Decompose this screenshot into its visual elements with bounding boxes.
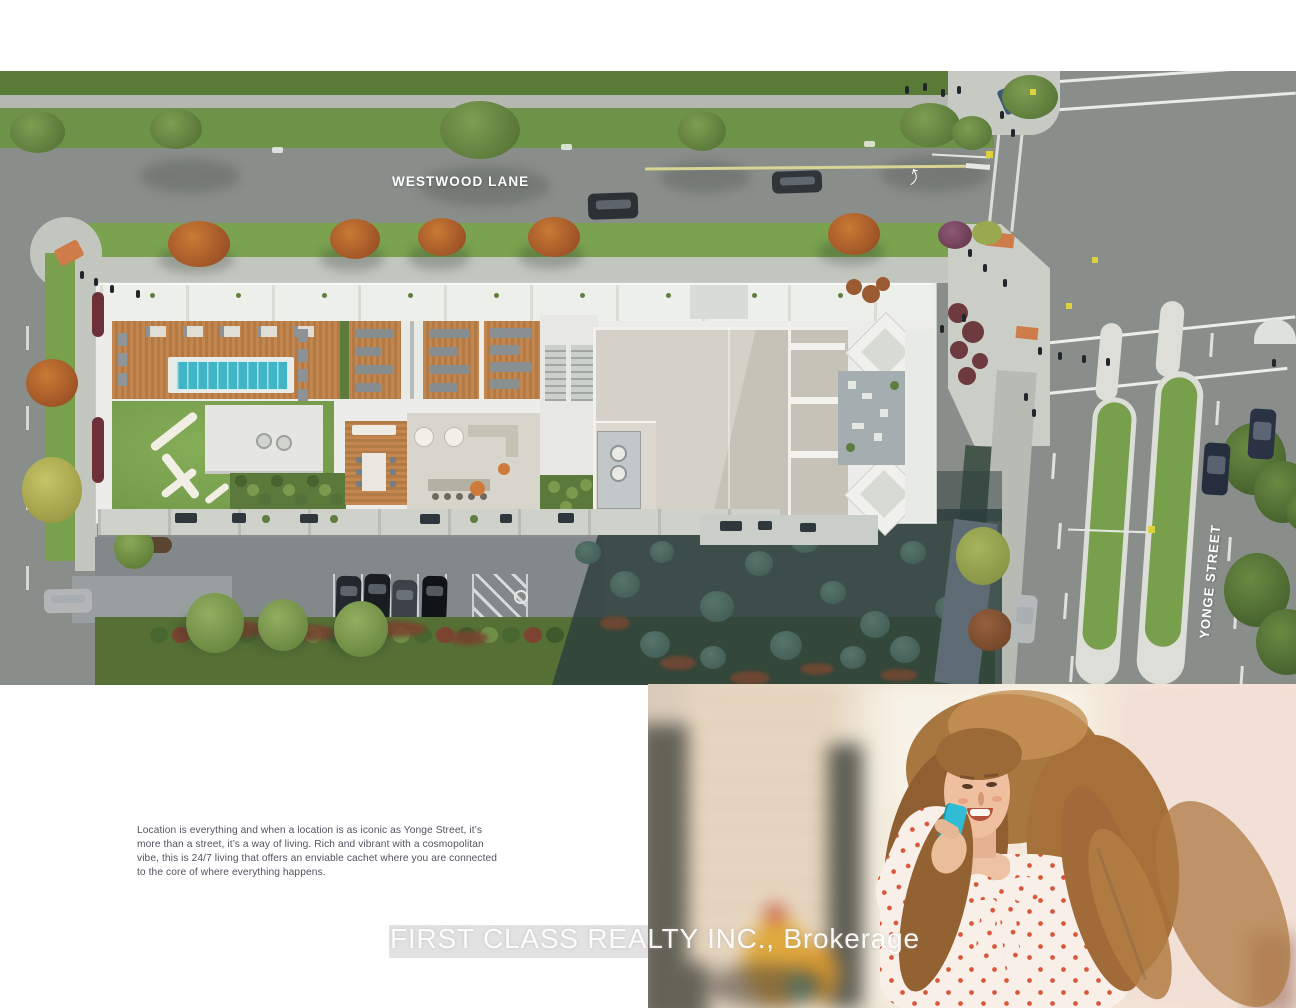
shrub — [283, 484, 295, 496]
shaded-bush — [860, 611, 890, 638]
autumn-tree — [528, 217, 580, 257]
car-yonge — [1201, 442, 1231, 496]
balcony-plant — [666, 293, 671, 298]
bar-stool — [444, 493, 451, 500]
terrace-unit — [800, 523, 816, 532]
blush — [992, 796, 1002, 802]
pedestrian — [968, 249, 972, 257]
deck-hedge — [340, 321, 349, 399]
car-glass — [1253, 421, 1272, 440]
terrace-plant — [890, 381, 899, 390]
blurred-crowd — [708, 964, 828, 1008]
terrace-unit — [558, 513, 574, 523]
terrace-unit — [175, 513, 197, 523]
pedestrian — [1106, 358, 1110, 366]
lawn-tree — [258, 599, 308, 651]
shaded-red-shrub — [730, 671, 770, 685]
teeth — [970, 809, 990, 816]
pedestrian — [136, 290, 140, 298]
blush — [958, 798, 968, 804]
terrace-unit — [758, 521, 772, 530]
terrace-band — [790, 397, 845, 404]
lane-dash — [1209, 333, 1214, 357]
bike-lane-marking — [561, 144, 572, 150]
autumn-tree — [168, 221, 230, 267]
pedestrian — [941, 89, 945, 97]
pedestrian — [940, 325, 944, 333]
pedestrian — [923, 83, 927, 91]
shaded-red-shrub — [880, 669, 918, 681]
pedestrian — [1000, 111, 1004, 119]
purple-shrub — [938, 221, 972, 249]
car-windshield — [340, 586, 357, 596]
shaded-red-shrub — [660, 656, 696, 670]
street-tree — [1002, 75, 1058, 119]
outdoor-kitchen — [506, 425, 518, 457]
shaded-bush — [650, 541, 674, 563]
balcony-plant — [580, 293, 585, 298]
median-tip — [1155, 300, 1186, 378]
pedestrian — [1003, 279, 1007, 287]
orange-umbrella — [470, 481, 485, 496]
balcony-plant — [236, 293, 241, 298]
traffic-signal — [1148, 526, 1155, 533]
tower-ridge — [728, 327, 730, 515]
entrance-canopy — [690, 285, 748, 319]
deck-chair — [298, 349, 308, 362]
car-windshield — [396, 590, 413, 600]
daybed — [490, 328, 532, 338]
lifestyle-photo-woman-on-phone — [648, 684, 1296, 1008]
autumn-tree — [26, 359, 78, 407]
terrace-plant — [470, 515, 478, 523]
terrace-unit — [300, 514, 318, 523]
terrace-unit — [232, 513, 246, 523]
car-glass — [1016, 606, 1034, 624]
daybed — [355, 329, 393, 338]
shrub — [295, 493, 307, 505]
car-side-street — [44, 589, 92, 614]
roof-vent — [610, 465, 627, 482]
bistro-table — [444, 427, 464, 447]
shrub — [259, 493, 271, 505]
pedestrian — [1082, 355, 1086, 363]
daybed — [490, 362, 532, 372]
autumn-shrub — [846, 279, 862, 295]
pool-lounger — [146, 326, 166, 337]
shrub — [331, 493, 343, 505]
car-glass — [780, 176, 815, 185]
red-hedge — [962, 321, 984, 343]
orange-umbrella — [498, 463, 510, 475]
pedestrian — [1024, 393, 1028, 401]
hedge — [546, 627, 564, 643]
chair — [356, 481, 362, 487]
red-brown-shrub — [968, 609, 1012, 651]
terrace-plant — [330, 515, 338, 523]
daybed — [430, 365, 470, 374]
daybed — [430, 329, 470, 338]
terrace-furniture — [880, 409, 888, 417]
blurred-light — [766, 904, 784, 922]
tower-edge — [788, 321, 791, 517]
pedestrian — [957, 86, 961, 94]
traffic-signal — [1092, 257, 1098, 263]
terrace-furniture — [848, 381, 856, 389]
deck-chair — [118, 353, 127, 366]
crosswalk-line — [1056, 92, 1296, 112]
pool-lounger — [220, 326, 240, 337]
autumn-shrub — [876, 277, 890, 291]
red-hedge — [950, 341, 968, 359]
traffic-signal — [1066, 303, 1072, 309]
daybed — [490, 379, 520, 389]
lane-dash — [26, 326, 29, 350]
terrace-plant — [262, 515, 270, 523]
shaded-bush — [745, 551, 773, 576]
chair — [390, 469, 396, 475]
car-glass — [596, 199, 631, 209]
red-hedge — [92, 292, 104, 337]
pedestrian — [1272, 359, 1276, 367]
lawn-tree — [186, 593, 244, 653]
yonge-street-label: YONGE STREET — [1196, 520, 1224, 643]
balcony-plant — [838, 293, 843, 298]
accessible-symbol — [514, 590, 528, 604]
shrub — [566, 487, 578, 499]
daybed — [355, 347, 381, 356]
terrace-unit — [720, 521, 742, 531]
car-westwood — [588, 192, 639, 220]
balcony-plant — [408, 293, 413, 298]
street-tree — [900, 103, 960, 147]
shrub — [247, 484, 259, 496]
skylight-divider — [566, 345, 571, 401]
lane-dash — [26, 406, 29, 430]
terrace-band — [790, 451, 845, 458]
bar-stool — [456, 493, 463, 500]
deck-chair — [118, 333, 127, 346]
chair — [356, 469, 362, 475]
deck-chair — [298, 329, 308, 342]
bike-lane-marking — [272, 147, 283, 153]
rooftop-pool — [176, 361, 288, 390]
shaded-bush — [610, 571, 640, 598]
balcony-plant — [322, 293, 327, 298]
roof-vent — [256, 433, 272, 449]
autumn-tree — [330, 219, 380, 259]
yellow-green-tree — [956, 527, 1010, 585]
pedestrian — [80, 271, 84, 279]
westwood-lane-label: WESTWOOD LANE — [392, 174, 529, 189]
hedge — [524, 627, 542, 643]
lane-dash — [1057, 523, 1062, 549]
autumn-tree — [828, 213, 880, 255]
shaded-bush — [890, 636, 920, 663]
car-glass — [1207, 455, 1226, 474]
pedestrian — [983, 264, 987, 272]
chair — [390, 457, 396, 463]
site-plan-aerial-render: WESTWOOD LANE YONGE STREET ⤴ — [0, 71, 1296, 685]
daybed — [430, 347, 458, 356]
terrace-furniture — [862, 393, 872, 399]
hedge — [502, 627, 520, 643]
median-grass — [1144, 376, 1199, 648]
shrub — [307, 475, 319, 487]
shrub — [548, 481, 560, 493]
brokerage-watermark: FIRST CLASS REALTY INC., Brokerage — [390, 923, 920, 955]
lawn-tree — [334, 601, 388, 657]
daybed — [355, 365, 393, 374]
lane-dash — [1069, 656, 1074, 682]
nose — [978, 792, 984, 806]
pedestrian — [1038, 347, 1042, 355]
red-hedge — [972, 353, 988, 369]
shrub — [235, 475, 247, 487]
pedestrian — [94, 278, 98, 286]
traffic-signal — [986, 151, 993, 158]
daybed — [355, 383, 381, 392]
roof-vent — [276, 435, 292, 451]
pedestrian — [962, 314, 966, 322]
deck-chair — [118, 373, 127, 386]
shrub — [271, 475, 283, 487]
deck-chair — [298, 369, 308, 382]
shrub — [580, 479, 592, 491]
autumn-tree — [418, 218, 466, 256]
terrace-unit — [500, 514, 512, 523]
shaded-bush — [640, 631, 670, 658]
outdoor-sofa — [352, 425, 396, 435]
car-windshield — [426, 586, 443, 596]
chair — [356, 457, 362, 463]
tree-shadow — [140, 159, 240, 193]
chair — [390, 481, 396, 487]
tactile-pad — [1015, 326, 1038, 340]
location-description: Location is everything and when a locati… — [137, 824, 505, 880]
shrub — [319, 484, 331, 496]
yellow-green-shrub — [972, 221, 1002, 245]
car-yonge — [1010, 594, 1038, 644]
shaded-bush — [770, 631, 802, 660]
median-grass — [1081, 401, 1132, 651]
roof-vent — [610, 445, 627, 462]
lane-dash — [1239, 666, 1244, 685]
lane-dash — [1063, 593, 1068, 619]
north-grass — [0, 71, 994, 96]
deck-path-strip — [410, 321, 414, 399]
car-westwood — [772, 170, 823, 194]
terrace-unit — [420, 514, 440, 524]
balcony-plant — [752, 293, 757, 298]
median — [1074, 396, 1138, 685]
bow-knot — [990, 880, 1012, 898]
red-shrub — [448, 631, 488, 645]
tree-shadow — [880, 156, 990, 192]
median — [1135, 370, 1205, 685]
shaded-bush — [700, 591, 734, 622]
dining-table — [362, 453, 386, 491]
car-yonge — [1247, 408, 1276, 460]
balcony-plant — [150, 293, 155, 298]
pedestrian — [1011, 129, 1015, 137]
terrace-plant — [846, 443, 855, 452]
lane-dash — [1215, 401, 1220, 425]
balcony-plant — [494, 293, 499, 298]
pedestrian — [110, 285, 114, 293]
lane-dash — [1227, 537, 1232, 561]
shaded-red-shrub — [600, 616, 630, 630]
yellow-tree — [22, 457, 82, 523]
shaded-red-shrub — [800, 663, 834, 675]
red-hedge — [92, 417, 104, 483]
terrace-furniture — [874, 433, 882, 441]
terrace-furniture — [852, 423, 864, 429]
pedestrian — [905, 86, 909, 94]
street-tree — [150, 109, 202, 149]
lane-dash — [1051, 453, 1056, 479]
traffic-signal — [1030, 89, 1036, 95]
car-glass — [51, 595, 85, 604]
pedestrian-refuge — [1254, 319, 1296, 344]
lane-dash — [26, 566, 29, 590]
east-roof-band — [905, 329, 935, 521]
pool-lounger — [183, 326, 203, 337]
car-windshield — [368, 584, 386, 594]
hedge — [150, 627, 168, 643]
bike-lane-marking — [864, 141, 875, 147]
terrace-band — [790, 343, 845, 350]
north-terrace-strip — [100, 285, 932, 321]
pedestrian — [1058, 352, 1062, 360]
pool-lounger — [257, 326, 277, 337]
red-hedge — [958, 367, 976, 385]
street-tree — [440, 101, 520, 159]
daybed — [490, 345, 520, 355]
daybed — [430, 383, 458, 392]
street-tree — [952, 116, 992, 150]
hair-fringe — [936, 728, 1022, 780]
street-tree — [678, 111, 726, 151]
bar-stool — [432, 493, 439, 500]
pedestrian — [1032, 409, 1036, 417]
crosswalk-line — [1050, 71, 1296, 84]
bistro-table — [414, 427, 434, 447]
street-tree — [10, 111, 65, 153]
